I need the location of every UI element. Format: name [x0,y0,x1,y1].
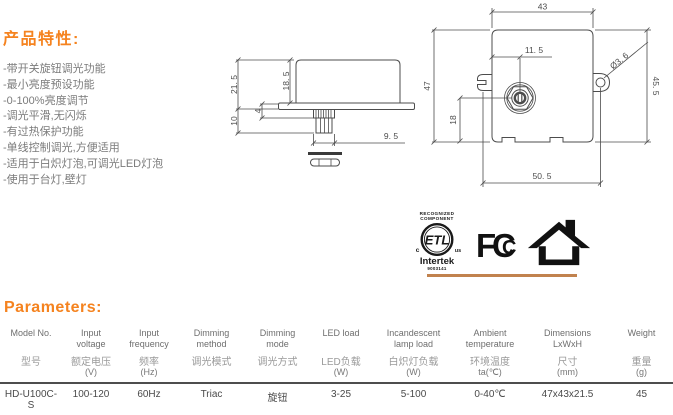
device-body-front [478,30,610,142]
cell-ambient-temperature: 0-40℃ [455,384,525,415]
datasheet-page: 产品特性: -带开关旋钮调光功能 -最小亮度预设功能 -0-100%亮度调节 -… [0,0,673,415]
front-view-drawing: 43 47 45. 5 11. 5 18 50. 5 Ø3. 6 [420,0,673,200]
column-header-dimming-mode: Dimming mode 调光方式 [245,328,310,378]
cell-led-load: 3-25 [310,384,372,415]
feature-item: -适用于白炽灯泡,可调光LED灯泡 [3,157,228,173]
house-wall-shape [539,246,580,265]
house-roof-shape [528,220,590,248]
front-view-dimensions: 43 47 45. 5 11. 5 18 50. 5 Ø3. 6 [422,2,661,188]
splined-shaft-side [316,118,332,133]
right-mounting-tab [593,74,610,92]
feature-item: -单线控制调光,方便适用 [3,141,228,157]
parameters-table: Model No. 型号 Input voltage 额定电压 (V) Inpu… [0,328,673,415]
cell-dimming-mode: 旋钮 [245,384,310,415]
feature-item: -0-100%亮度调节 [3,94,228,110]
dim-label-45-5: 45. 5 [651,77,661,96]
side-view-drawing: 21. 5 18. 5 10 4 9. 5 [228,48,428,188]
dim-label-4: 4 [253,108,263,113]
etl-recognized-component-logo: RECOGNIZED COMPONENT ETL c us Intertek 9… [402,209,472,273]
fcc-logo: F C C [476,226,524,262]
cell-dimensions: 47x43x21.5 [525,384,610,415]
column-header-dimensions: Dimensions LxWxH 尺寸 (mm) [525,328,610,378]
mounting-flange-side [279,103,415,110]
washer-side [308,152,342,155]
dim-label-21-5: 21. 5 [229,75,239,94]
column-header-incandescent-load: Incandescent lamp load 白炽灯负载 (W) [372,328,455,378]
cell-input-voltage: 100-120 [62,384,120,415]
column-header-ambient-temperature: Ambient temperature 环境温度 ta(℃) [455,328,525,378]
house-certification-icon [526,216,592,269]
etl-mark: ETL [425,233,450,248]
features-title: 产品特性: [3,25,228,49]
fcc-letter-c-inner: C [502,237,516,259]
etl-component-text: COMPONENT [420,216,453,221]
product-features-section: 产品特性: -带开关旋钮调光功能 -最小亮度预设功能 -0-100%亮度调节 -… [3,25,228,188]
mounting-hole [596,78,605,87]
dim-label-11-5: 11. 5 [525,45,544,55]
column-header-weight: Weight 重量 (g) [610,328,673,378]
cell-input-frequency: 60Hz [120,384,178,415]
section-divider-line [427,274,577,277]
feature-item: -有过热保护功能 [3,125,228,141]
column-header-input-voltage: Input voltage 额定电压 (V) [62,328,120,378]
dim-label-10: 10 [229,116,239,126]
cell-weight: 45 [610,384,673,415]
cell-dimming-method: Triac [178,384,245,415]
dim-label-47: 47 [422,81,432,91]
dim-label-43: 43 [538,2,548,12]
feature-item: -使用于台灯,壁灯 [3,173,228,189]
cell-incandescent-load: 5-100 [372,384,455,415]
dim-label-9-5: 9. 5 [384,131,398,141]
etl-control-number: 9003141 [427,266,446,271]
feature-item: -调光平滑,无闪烁 [3,109,228,125]
features-list: -带开关旋钮调光功能 -最小亮度预设功能 -0-100%亮度调节 -调光平滑,无… [3,62,228,188]
column-header-led-load: LED load LED负载 (W) [310,328,372,378]
cell-model-no: HD-U100C-S [0,384,62,415]
feature-item: -带开关旋钮调光功能 [3,62,228,78]
device-body-side [279,60,415,166]
feature-item: -最小亮度预设功能 [3,78,228,94]
column-header-input-frequency: Input frequency 频率 (Hz) [120,328,178,378]
dim-label-50-5: 50. 5 [533,171,552,181]
column-header-dimming-method: Dimming method 调光模式 [178,328,245,378]
nut-side [311,159,340,166]
etl-c-mark: c [416,247,420,254]
left-mounting-tab [478,75,493,91]
parameters-title: Parameters: [4,299,102,317]
table-row: HD-U100C-S 100-120 60Hz Triac 旋钮 3-25 5-… [0,382,673,415]
column-header-model: Model No. 型号 [0,328,62,378]
parameters-table-header: Model No. 型号 Input voltage 额定电压 (V) Inpu… [0,328,673,378]
etl-us-mark: us [455,248,461,254]
dim-label-18: 18 [448,115,458,125]
dim-label-18-5: 18. 5 [281,71,291,90]
dim-label-hole-diameter: Ø3. 6 [608,50,631,71]
